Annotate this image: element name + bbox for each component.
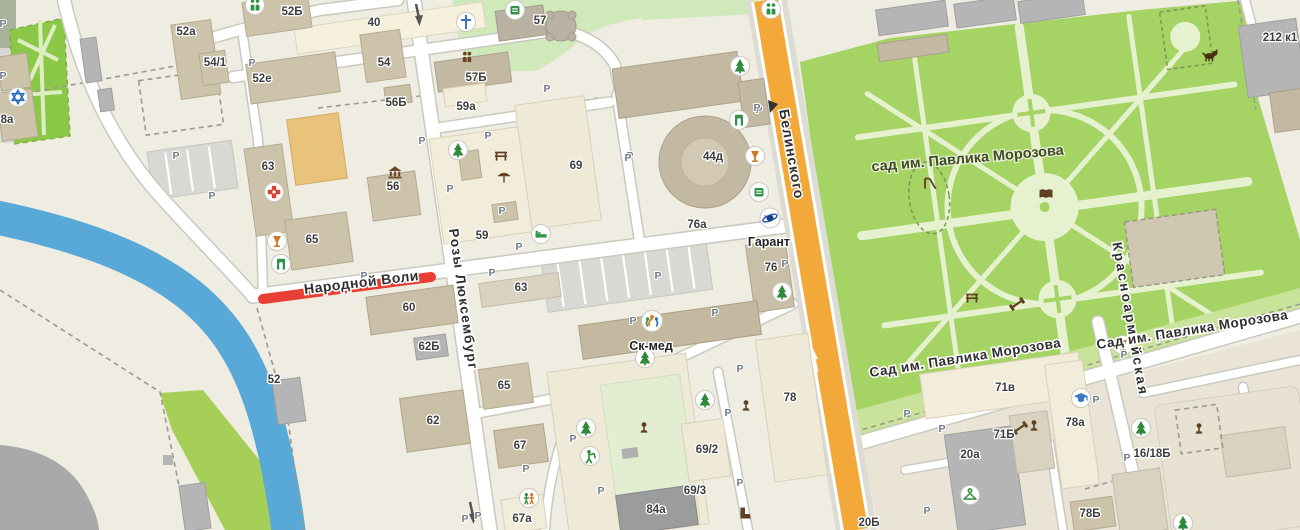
- wine-icon[interactable]: [1114, 336, 1133, 355]
- skmed-icon[interactable]: [642, 311, 663, 332]
- door-icon[interactable]: [272, 255, 291, 274]
- door-icon[interactable]: [730, 111, 749, 130]
- tree-icon[interactable]: [1132, 419, 1151, 438]
- tree-icon[interactable]: [696, 391, 715, 410]
- tree-icon[interactable]: [577, 419, 596, 438]
- tree-icon[interactable]: [1174, 514, 1193, 530]
- tree-icon[interactable]: [449, 141, 468, 160]
- kids-icon[interactable]: [520, 489, 539, 508]
- star-icon[interactable]: [9, 88, 28, 107]
- map-viewport[interactable]: РРРРРРРРРРРРРРРРРРРРРРРРРРРРРРРРРРРР 405…: [0, 0, 1300, 530]
- people2-icon[interactable]: [246, 0, 265, 15]
- church-icon[interactable]: [457, 13, 476, 32]
- golf-icon[interactable]: [581, 447, 600, 466]
- grad-icon[interactable]: [1072, 389, 1091, 408]
- wine-icon[interactable]: [268, 232, 287, 251]
- tree-icon[interactable]: [636, 349, 655, 368]
- atm-icon[interactable]: [750, 183, 769, 202]
- book-icon[interactable]: [1040, 189, 1053, 198]
- bed-icon[interactable]: [532, 225, 551, 244]
- garant-icon[interactable]: [760, 208, 780, 228]
- atm-icon[interactable]: [506, 1, 525, 20]
- wine-icon[interactable]: [746, 147, 765, 166]
- map-canvas[interactable]: РРРРРРРРРРРРРРРРРРРРРРРРРРРРРРРРРРРР 405…: [0, 0, 1300, 530]
- tree-icon[interactable]: [731, 57, 750, 76]
- people2-icon[interactable]: [762, 0, 781, 19]
- tree-icon[interactable]: [773, 283, 792, 302]
- medical-icon[interactable]: [265, 183, 284, 202]
- hanger-icon[interactable]: [961, 486, 980, 505]
